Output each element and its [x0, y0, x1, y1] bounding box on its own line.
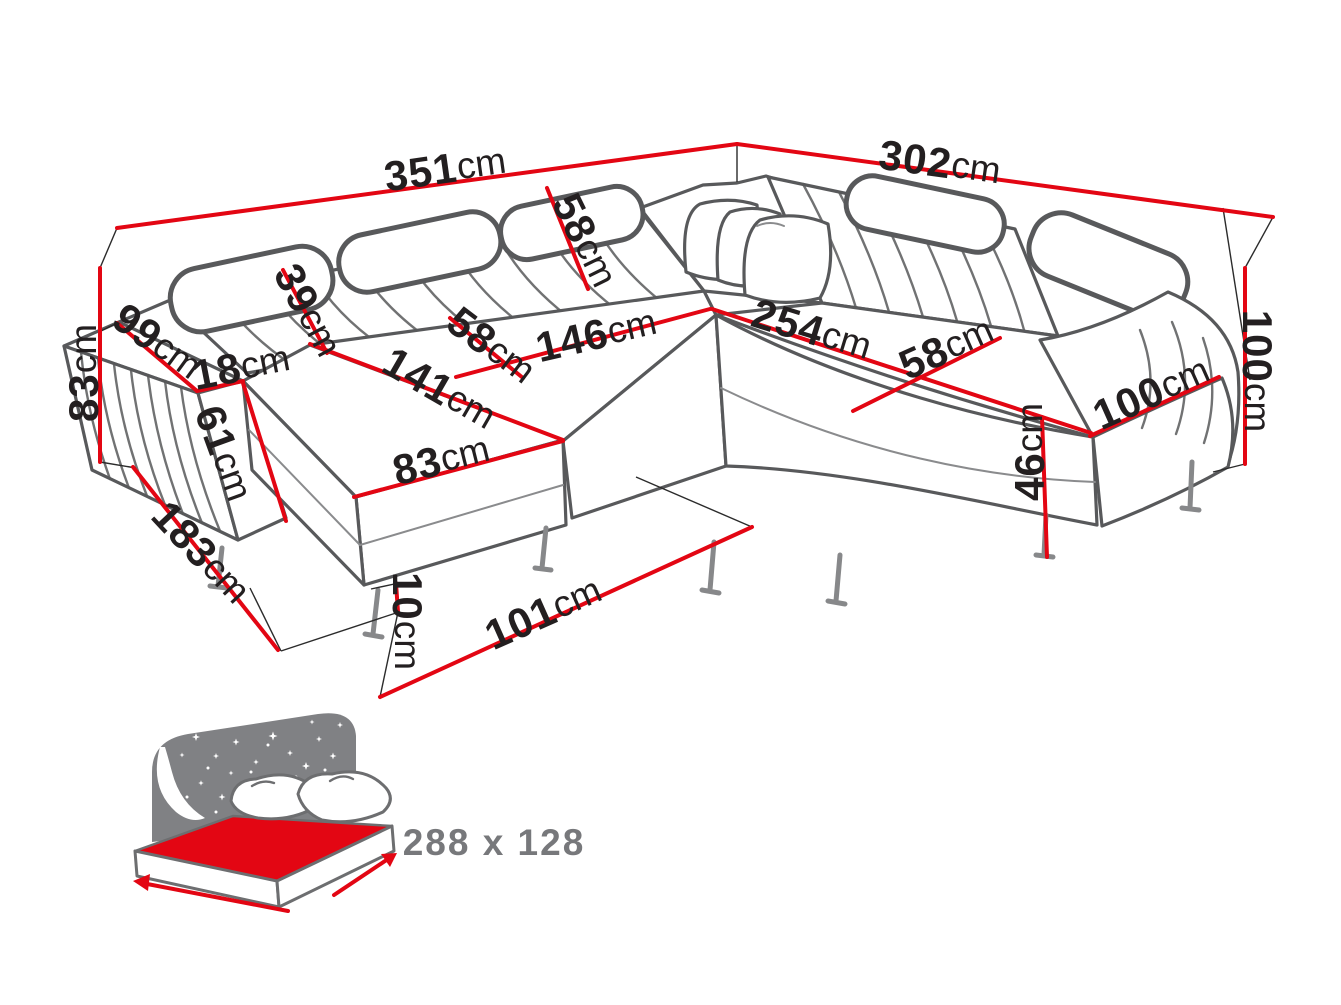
sofa-leg	[365, 590, 382, 637]
sofa-leg	[828, 555, 845, 604]
dim-label-leg-height: 10cm	[385, 572, 432, 670]
sofa-diagram-canvas: 351cm 302cm 83cm 58cm 39cm 99cm 18cm 61c…	[0, 0, 1341, 1005]
pillow	[744, 216, 831, 303]
dim-label-total-height-right: 100cm	[1235, 310, 1282, 432]
sleeping-area-size: 288 x 128	[403, 822, 586, 863]
dim-label-total-width-left: 351cm	[381, 136, 509, 200]
dim-label-bed-extension-width: 101cm	[478, 566, 609, 659]
dim-label-seat-height: 46cm	[1006, 403, 1053, 501]
bed-pillows	[231, 772, 390, 822]
sleep-function-icon	[133, 713, 397, 911]
dim-label-total-height-left: 83cm	[60, 324, 107, 422]
dimension-diagram: 351cm 302cm 83cm 58cm 39cm 99cm 18cm 61c…	[0, 0, 1341, 1005]
